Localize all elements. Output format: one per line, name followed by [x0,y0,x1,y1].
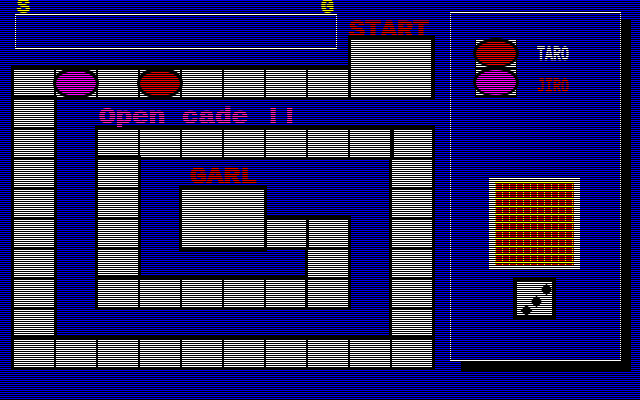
svg-text:Open cade !!: Open cade !! [99,105,298,130]
svg-text:JIRO: JIRO [537,76,569,99]
svg-text:TARO: TARO [537,44,569,67]
svg-text:GARL: GARL [190,164,257,190]
